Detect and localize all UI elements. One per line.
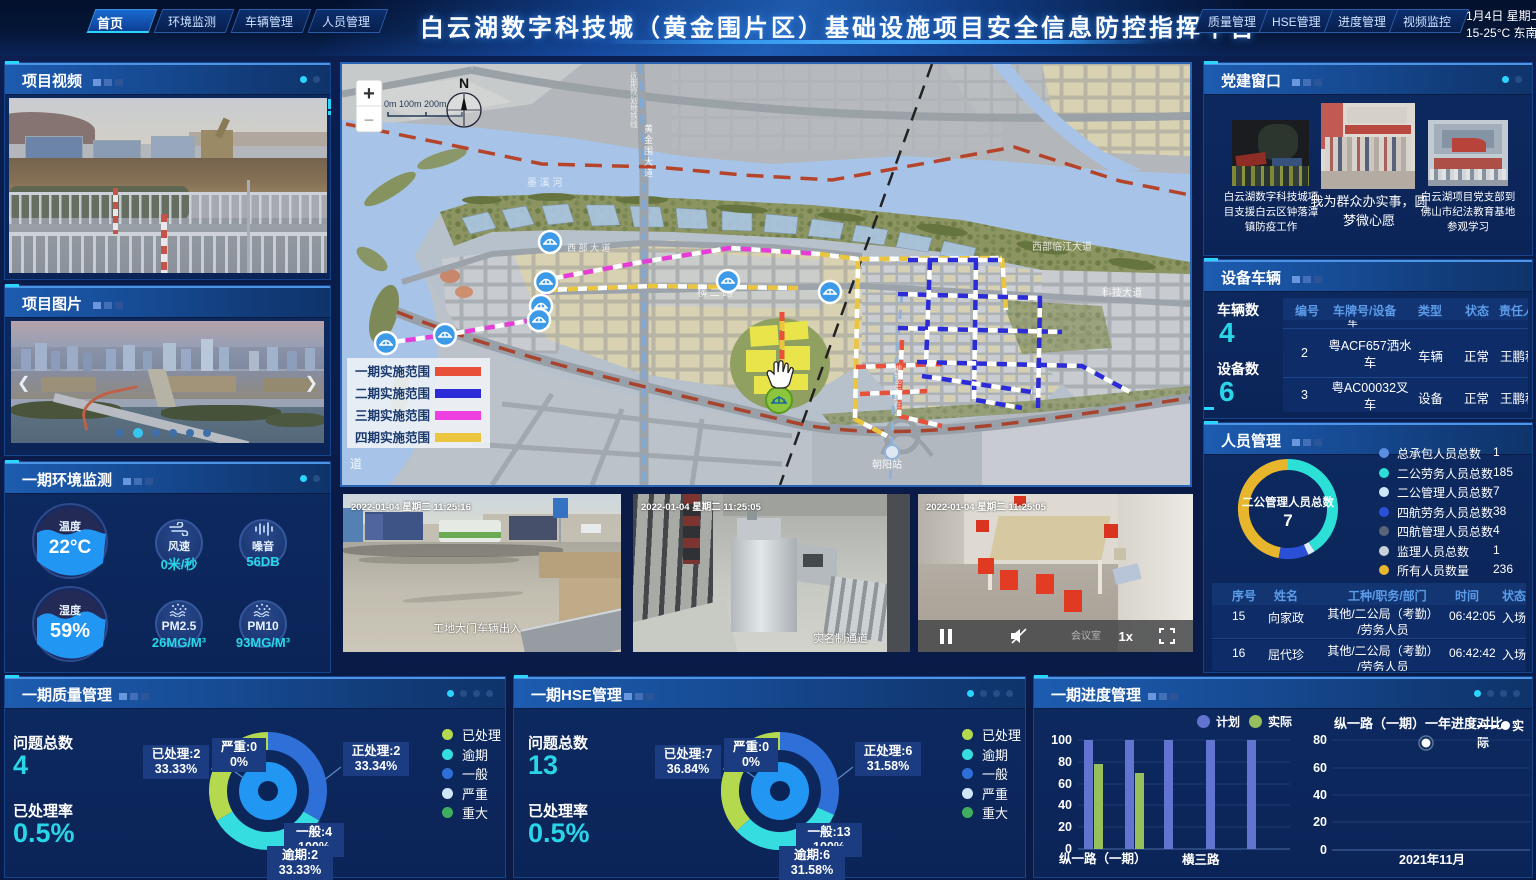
svg-text:N: N [459, 75, 469, 91]
svg-text:40: 40 [1313, 788, 1327, 802]
svg-text:地铁8号线在建: 地铁8号线在建 [894, 363, 903, 417]
svg-text:黄金围大道: 黄金围大道 [643, 123, 653, 179]
svg-text:7: 7 [1283, 511, 1292, 530]
svg-text:59%: 59% [50, 620, 90, 642]
svg-text:0m 100m 200m: 0m 100m 200m [384, 99, 447, 109]
svg-text:道: 道 [350, 457, 362, 471]
svg-text:三期实施范围: 三期实施范围 [355, 408, 430, 423]
svg-text:20: 20 [1313, 815, 1327, 829]
svg-text:二公管理人员总数: 二公管理人员总数 [1242, 495, 1334, 509]
svg-text:+: + [363, 83, 375, 105]
svg-text:四期实施范围: 四期实施范围 [355, 430, 430, 445]
svg-text:80: 80 [1313, 733, 1327, 747]
svg-text:西部临江大道: 西部临江大道 [1032, 240, 1092, 253]
svg-text:朝阳站: 朝阳站 [872, 458, 902, 471]
svg-text:一期实施范围: 一期实施范围 [355, 364, 430, 379]
svg-text:西 部 大 道: 西 部 大 道 [567, 242, 611, 253]
svg-text:二期实施范围: 二期实施范围 [355, 386, 430, 401]
svg-text:湿度: 湿度 [59, 603, 82, 617]
svg-text:温度: 温度 [59, 519, 82, 533]
svg-text:100: 100 [1051, 733, 1072, 747]
svg-text:横三路: 横三路 [1182, 852, 1220, 865]
svg-text:2021年11月: 2021年11月 [1399, 852, 1465, 865]
svg-text:60: 60 [1058, 777, 1072, 791]
svg-text:22°C: 22°C [49, 537, 92, 558]
svg-text:0: 0 [1320, 843, 1327, 857]
svg-text:20: 20 [1058, 820, 1072, 834]
svg-text:墨 溪 河: 墨 溪 河 [527, 177, 563, 189]
svg-text:纵一路（一期）: 纵一路（一期） [1059, 851, 1147, 865]
svg-text:−: − [364, 110, 375, 130]
svg-text:40: 40 [1058, 798, 1072, 812]
svg-text:60: 60 [1313, 761, 1327, 775]
svg-text:科技大道: 科技大道 [1102, 286, 1142, 299]
svg-text:远期规划地铁线: 远期规划地铁线 [630, 72, 639, 128]
svg-text:80: 80 [1058, 755, 1072, 769]
